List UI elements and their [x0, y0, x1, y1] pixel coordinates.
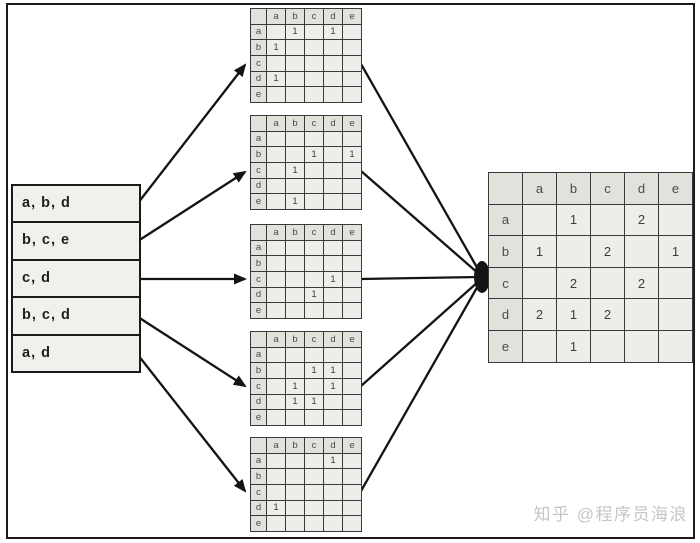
matrix3-cell-ca: [267, 272, 286, 288]
aggregate-cell-ae: [659, 204, 693, 236]
matrix1-col-header-b: b: [286, 9, 305, 25]
matrix2-cell-bd: [324, 147, 343, 163]
aggregate-cell-ab: 1: [557, 204, 591, 236]
cooccurrence-matrix-5: abcdea1bcd1e: [250, 437, 362, 532]
matrix4-cell-bb: [286, 363, 305, 379]
matrix2-cell-db: [286, 178, 305, 194]
matrix1-cell-ed: [324, 87, 343, 103]
cooccurrence-matrix-3: abcdeabc1d1e: [250, 224, 362, 319]
matrix5-col-header-a: a: [267, 438, 286, 454]
matrix3-cell-de: [343, 287, 362, 303]
matrix3-row-header-b: b: [251, 256, 267, 272]
matrix3-cell-cb: [286, 272, 305, 288]
matrix5-cell-da: 1: [267, 500, 286, 516]
matrix4-cell-da: [267, 394, 286, 410]
aggregate-cell-be: 1: [659, 236, 693, 268]
matrix4-cell-ac: [305, 347, 324, 363]
aggregate-corner-cell: [489, 173, 523, 205]
aggregate-cell-ed: [625, 330, 659, 362]
aggregate-row-header-e: e: [489, 330, 523, 362]
matrix3-cell-ae: [343, 240, 362, 256]
matrix4-cell-cb: 1: [286, 379, 305, 395]
matrix2-cell-bb: [286, 147, 305, 163]
matrix2-cell-dd: [324, 178, 343, 194]
matrix1-cell-db: [286, 71, 305, 87]
matrix4-cell-de: [343, 394, 362, 410]
matrix2-cell-ad: [324, 131, 343, 147]
matrix5-col-header-e: e: [343, 438, 362, 454]
matrix3-row-header-e: e: [251, 303, 267, 319]
matrix4-row-header-a: a: [251, 347, 267, 363]
aggregate-cell-cd: 2: [625, 267, 659, 299]
matrix3-cell-cd: 1: [324, 272, 343, 288]
matrix4-row-header-b: b: [251, 363, 267, 379]
matrix4-col-header-b: b: [286, 332, 305, 348]
matrix4-col-header-d: d: [324, 332, 343, 348]
matrix5-row-header-c: c: [251, 485, 267, 501]
aggregate-col-header-a: a: [523, 173, 557, 205]
aggregate-row-header-c: c: [489, 267, 523, 299]
matrix1-col-header-e: e: [343, 9, 362, 25]
matrix5-cell-ce: [343, 485, 362, 501]
matrix4-cell-ba: [267, 363, 286, 379]
matrix4-col-header-a: a: [267, 332, 286, 348]
matrix3-cell-bd: [324, 256, 343, 272]
matrix2-cell-da: [267, 178, 286, 194]
matrix2-cell-ba: [267, 147, 286, 163]
transaction-row-5: a, d: [13, 336, 139, 371]
matrix5-cell-db: [286, 500, 305, 516]
matrix2-col-header-e: e: [343, 116, 362, 132]
matrix4-table: abcdeab11c11d11e: [250, 331, 362, 426]
aggregate-cell-bd: [625, 236, 659, 268]
matrix5-cell-dd: [324, 500, 343, 516]
matrix2-cell-ee: [343, 194, 362, 210]
matrix1-col-header-c: c: [305, 9, 324, 25]
cooccurrence-matrix-4: abcdeab11c11d11e: [250, 331, 362, 426]
matrix3-cell-bc: [305, 256, 324, 272]
matrix5-cell-ba: [267, 469, 286, 485]
matrix3-row-header-a: a: [251, 240, 267, 256]
matrix4-cell-bc: 1: [305, 363, 324, 379]
matrix5-row-header-d: d: [251, 500, 267, 516]
matrix1-cell-cd: [324, 56, 343, 72]
watermark: 知乎 @程序员海浪: [534, 500, 688, 525]
matrix4-cell-ad: [324, 347, 343, 363]
matrix1-cell-be: [343, 40, 362, 56]
aggregate-col-header-c: c: [591, 173, 625, 205]
cooccurrence-matrix-2: abcdeab11c1de1: [250, 115, 362, 210]
matrix5-col-header-c: c: [305, 438, 324, 454]
matrix3-cell-ab: [286, 240, 305, 256]
matrix1-cell-ea: [267, 87, 286, 103]
matrix1-corner-cell: [251, 9, 267, 25]
matrix4-cell-ec: [305, 410, 324, 426]
matrix2-cell-ab: [286, 131, 305, 147]
matrix4-cell-ab: [286, 347, 305, 363]
aggregate-cell-de: [659, 299, 693, 331]
matrix3-cell-ce: [343, 272, 362, 288]
aggregate-cell-ce: [659, 267, 693, 299]
matrix4-cell-cd: 1: [324, 379, 343, 395]
aggregate-col-header-b: b: [557, 173, 591, 205]
transaction-row-3: c, d: [13, 261, 139, 298]
aggregate-cell-ac: [591, 204, 625, 236]
matrix2-cell-cb: 1: [286, 163, 305, 179]
matrix4-cell-ee: [343, 410, 362, 426]
matrix1-cell-aa: [267, 24, 286, 40]
matrix1-cell-ab: 1: [286, 24, 305, 40]
matrix5-col-header-d: d: [324, 438, 343, 454]
aggregate-cell-ca: [523, 267, 557, 299]
aggregate-cell-bb: [557, 236, 591, 268]
aggregate-row-header-a: a: [489, 204, 523, 236]
matrix2-cell-bc: 1: [305, 147, 324, 163]
matrix5-row-header-e: e: [251, 516, 267, 532]
matrix3-cell-dd: [324, 287, 343, 303]
aggregate-col-header-e: e: [659, 173, 693, 205]
matrix1-row-header-b: b: [251, 40, 267, 56]
matrix1-cell-de: [343, 71, 362, 87]
aggregate-cell-ee: [659, 330, 693, 362]
matrix1-cell-eb: [286, 87, 305, 103]
matrix1-cell-ee: [343, 87, 362, 103]
matrix2-row-header-c: c: [251, 163, 267, 179]
matrix2-cell-ca: [267, 163, 286, 179]
matrix5-cell-bd: [324, 469, 343, 485]
aggregate-cell-bc: 2: [591, 236, 625, 268]
matrix4-cell-bd: 1: [324, 363, 343, 379]
aggregate-cell-dd: [625, 299, 659, 331]
matrix2-cell-ac: [305, 131, 324, 147]
aggregate-cell-ba: 1: [523, 236, 557, 268]
matrix5-cell-cb: [286, 485, 305, 501]
matrix1-cell-cb: [286, 56, 305, 72]
matrix1-cell-ca: [267, 56, 286, 72]
matrix1-row-header-e: e: [251, 87, 267, 103]
matrix3-cell-bb: [286, 256, 305, 272]
transaction-row-2: b, c, e: [13, 223, 139, 260]
matrix5-cell-eb: [286, 516, 305, 532]
matrix5-cell-de: [343, 500, 362, 516]
matrix3-cell-eb: [286, 303, 305, 319]
matrix1-cell-dd: [324, 71, 343, 87]
matrix4-corner-cell: [251, 332, 267, 348]
matrix3-cell-da: [267, 287, 286, 303]
matrix3-cell-be: [343, 256, 362, 272]
matrix5-cell-ab: [286, 453, 305, 469]
matrix1-cell-ad: 1: [324, 24, 343, 40]
matrix2-row-header-b: b: [251, 147, 267, 163]
matrix2-row-header-d: d: [251, 178, 267, 194]
matrix5-cell-ca: [267, 485, 286, 501]
matrix2-cell-ce: [343, 163, 362, 179]
matrix3-table: abcdeabc1d1e: [250, 224, 362, 319]
matrix1-table: abcdea11b1cd1e: [250, 8, 362, 103]
matrix4-cell-ea: [267, 410, 286, 426]
matrix5-corner-cell: [251, 438, 267, 454]
matrix5-col-header-b: b: [286, 438, 305, 454]
matrix2-cell-cd: [324, 163, 343, 179]
matrix2-col-header-a: a: [267, 116, 286, 132]
matrix2-cell-ea: [267, 194, 286, 210]
matrix3-cell-cc: [305, 272, 324, 288]
matrix5-cell-ac: [305, 453, 324, 469]
matrix1-row-header-d: d: [251, 71, 267, 87]
matrix3-cell-db: [286, 287, 305, 303]
matrix2-cell-eb: 1: [286, 194, 305, 210]
matrix2-col-header-b: b: [286, 116, 305, 132]
aggregate-cell-da: 2: [523, 299, 557, 331]
matrix2-cell-ed: [324, 194, 343, 210]
matrix4-cell-ce: [343, 379, 362, 395]
matrix4-row-header-c: c: [251, 379, 267, 395]
matrix3-cell-aa: [267, 240, 286, 256]
matrix2-table: abcdeab11c1de1: [250, 115, 362, 210]
aggregate-matrix: abcdea12b121c22d212e1: [488, 172, 693, 363]
transaction-row-1: a, b, d: [13, 186, 139, 223]
matrix5-row-header-a: a: [251, 453, 267, 469]
matrix4-cell-ae: [343, 347, 362, 363]
aggregate-cell-ad: 2: [625, 204, 659, 236]
matrix3-col-header-d: d: [324, 225, 343, 241]
matrix2-col-header-c: c: [305, 116, 324, 132]
matrix3-cell-dc: 1: [305, 287, 324, 303]
matrix4-col-header-e: e: [343, 332, 362, 348]
aggregate-table: abcdea12b121c22d212e1: [488, 172, 693, 363]
matrix4-cell-db: 1: [286, 394, 305, 410]
matrix1-cell-ae: [343, 24, 362, 40]
cooccurrence-matrix-1: abcdea11b1cd1e: [250, 8, 362, 103]
aggregate-col-header-d: d: [625, 173, 659, 205]
matrix2-cell-dc: [305, 178, 324, 194]
matrix1-cell-ce: [343, 56, 362, 72]
aggregate-cell-cb: 2: [557, 267, 591, 299]
matrix5-cell-ec: [305, 516, 324, 532]
matrix1-row-header-c: c: [251, 56, 267, 72]
matrix3-cell-ee: [343, 303, 362, 319]
transaction-row-4: b, c, d: [13, 298, 139, 335]
matrix1-cell-ec: [305, 87, 324, 103]
matrix5-cell-ea: [267, 516, 286, 532]
matrix5-cell-ee: [343, 516, 362, 532]
transaction-list: a, b, db, c, ec, db, c, da, d: [11, 184, 141, 373]
aggregate-cell-eb: 1: [557, 330, 591, 362]
matrix2-cell-cc: [305, 163, 324, 179]
matrix5-cell-aa: [267, 453, 286, 469]
matrix2-cell-de: [343, 178, 362, 194]
matrix4-cell-dc: 1: [305, 394, 324, 410]
matrix1-row-header-a: a: [251, 24, 267, 40]
matrix2-cell-aa: [267, 131, 286, 147]
matrix1-col-header-d: d: [324, 9, 343, 25]
matrix1-cell-cc: [305, 56, 324, 72]
matrix4-cell-ed: [324, 410, 343, 426]
matrix1-cell-da: 1: [267, 71, 286, 87]
matrix3-row-header-c: c: [251, 272, 267, 288]
matrix2-cell-ec: [305, 194, 324, 210]
matrix3-col-header-a: a: [267, 225, 286, 241]
matrix5-cell-ed: [324, 516, 343, 532]
matrix1-cell-bb: [286, 40, 305, 56]
matrix5-cell-bb: [286, 469, 305, 485]
matrix2-col-header-d: d: [324, 116, 343, 132]
matrix5-row-header-b: b: [251, 469, 267, 485]
matrix2-cell-be: 1: [343, 147, 362, 163]
aggregate-cell-dc: 2: [591, 299, 625, 331]
aggregate-cell-ec: [591, 330, 625, 362]
matrix3-cell-ea: [267, 303, 286, 319]
matrix1-cell-ac: [305, 24, 324, 40]
matrix2-row-header-e: e: [251, 194, 267, 210]
matrix3-cell-ec: [305, 303, 324, 319]
matrix2-corner-cell: [251, 116, 267, 132]
matrix4-cell-ca: [267, 379, 286, 395]
aggregate-row-header-d: d: [489, 299, 523, 331]
aggregate-cell-aa: [523, 204, 557, 236]
matrix2-cell-ae: [343, 131, 362, 147]
matrix4-cell-cc: [305, 379, 324, 395]
matrix5-cell-ad: 1: [324, 453, 343, 469]
matrix1-cell-ba: 1: [267, 40, 286, 56]
matrix3-corner-cell: [251, 225, 267, 241]
matrix3-col-header-e: e: [343, 225, 362, 241]
matrix5-cell-be: [343, 469, 362, 485]
matrix5-cell-cd: [324, 485, 343, 501]
matrix5-cell-cc: [305, 485, 324, 501]
matrix1-cell-dc: [305, 71, 324, 87]
matrix2-row-header-a: a: [251, 131, 267, 147]
cooccurrence-diagram: a, b, db, c, ec, db, c, da, d abcdea11b1…: [0, 0, 700, 543]
matrix4-cell-eb: [286, 410, 305, 426]
matrix3-col-header-c: c: [305, 225, 324, 241]
matrix3-cell-ed: [324, 303, 343, 319]
matrix4-cell-be: [343, 363, 362, 379]
aggregate-cell-cc: [591, 267, 625, 299]
matrix5-cell-ae: [343, 453, 362, 469]
matrix5-cell-dc: [305, 500, 324, 516]
matrix5-table: abcdea1bcd1e: [250, 437, 362, 532]
matrix3-row-header-d: d: [251, 287, 267, 303]
matrix4-row-header-e: e: [251, 410, 267, 426]
matrix3-cell-ba: [267, 256, 286, 272]
matrix3-cell-ac: [305, 240, 324, 256]
matrix1-cell-bc: [305, 40, 324, 56]
matrix4-col-header-c: c: [305, 332, 324, 348]
matrix4-row-header-d: d: [251, 394, 267, 410]
aggregate-cell-ea: [523, 330, 557, 362]
matrix1-cell-bd: [324, 40, 343, 56]
matrix3-col-header-b: b: [286, 225, 305, 241]
matrix5-cell-bc: [305, 469, 324, 485]
aggregate-cell-db: 1: [557, 299, 591, 331]
matrix4-cell-aa: [267, 347, 286, 363]
matrix1-col-header-a: a: [267, 9, 286, 25]
matrix4-cell-dd: [324, 394, 343, 410]
matrix3-cell-ad: [324, 240, 343, 256]
aggregate-row-header-b: b: [489, 236, 523, 268]
